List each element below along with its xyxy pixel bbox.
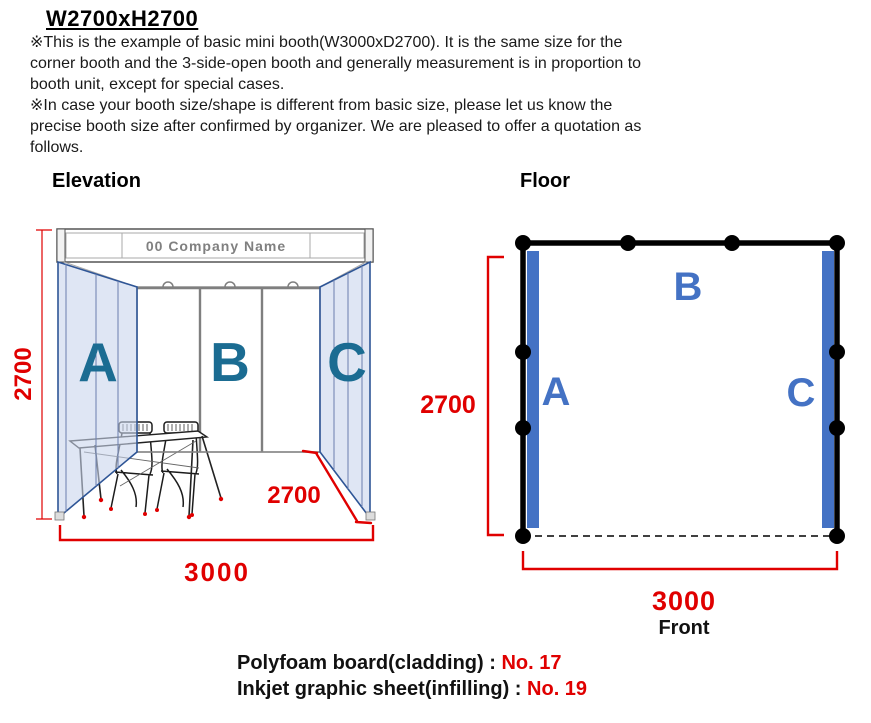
elevation-width-label: 3000 — [184, 557, 250, 587]
elevation-width-dimension: 3000 — [60, 525, 373, 587]
company-name-label: 00 Company Name — [146, 238, 286, 254]
floor-wall-b-label: B — [674, 265, 703, 309]
floor-graphic-panel-a — [527, 251, 539, 528]
floor-graphic-panel-c — [822, 251, 834, 528]
elevation-height-label: 2700 — [10, 347, 37, 400]
floor-depth-dimension: 2700 — [420, 257, 504, 535]
booth-spec-page: W2700xH2700 ※This is the example of basi… — [0, 0, 871, 723]
floor-wall-c-label: C — [787, 371, 816, 415]
infilling-label: Inkjet graphic sheet(infilling) : — [237, 678, 527, 700]
furniture-feet — [82, 497, 223, 519]
drawings-canvas: 2700 00 Company Name — [0, 0, 871, 723]
elevation-drawing: 2700 00 Company Name — [10, 229, 375, 587]
material-notes: Polyfoam board(cladding) : No. 17 Inkjet… — [237, 650, 587, 702]
cladding-number: No. 17 — [501, 652, 561, 674]
elevation-height-dimension: 2700 — [10, 230, 52, 519]
floor-width-dimension: 3000 — [523, 551, 837, 616]
elevation-depth-label: 2700 — [267, 482, 320, 509]
floor-wall-a-label: A — [542, 370, 571, 414]
elevation-wall-c-label: C — [327, 331, 367, 393]
floor-front-label: Front — [658, 617, 709, 639]
elevation-wall-b-label: B — [210, 331, 250, 393]
elevation-wall-a-label: A — [78, 331, 118, 393]
cladding-label: Polyfoam board(cladding) : — [237, 652, 501, 674]
infilling-note: Inkjet graphic sheet(infilling) : No. 19 — [237, 676, 587, 702]
floor-width-label: 3000 — [652, 586, 716, 616]
infilling-number: No. 19 — [527, 678, 587, 700]
fascia-board: 00 Company Name — [57, 229, 373, 262]
cladding-note: Polyfoam board(cladding) : No. 17 — [237, 650, 587, 676]
floor-depth-label: 2700 — [420, 391, 476, 419]
floor-plan-drawing: B A C 2700 3000 Front — [420, 235, 845, 639]
